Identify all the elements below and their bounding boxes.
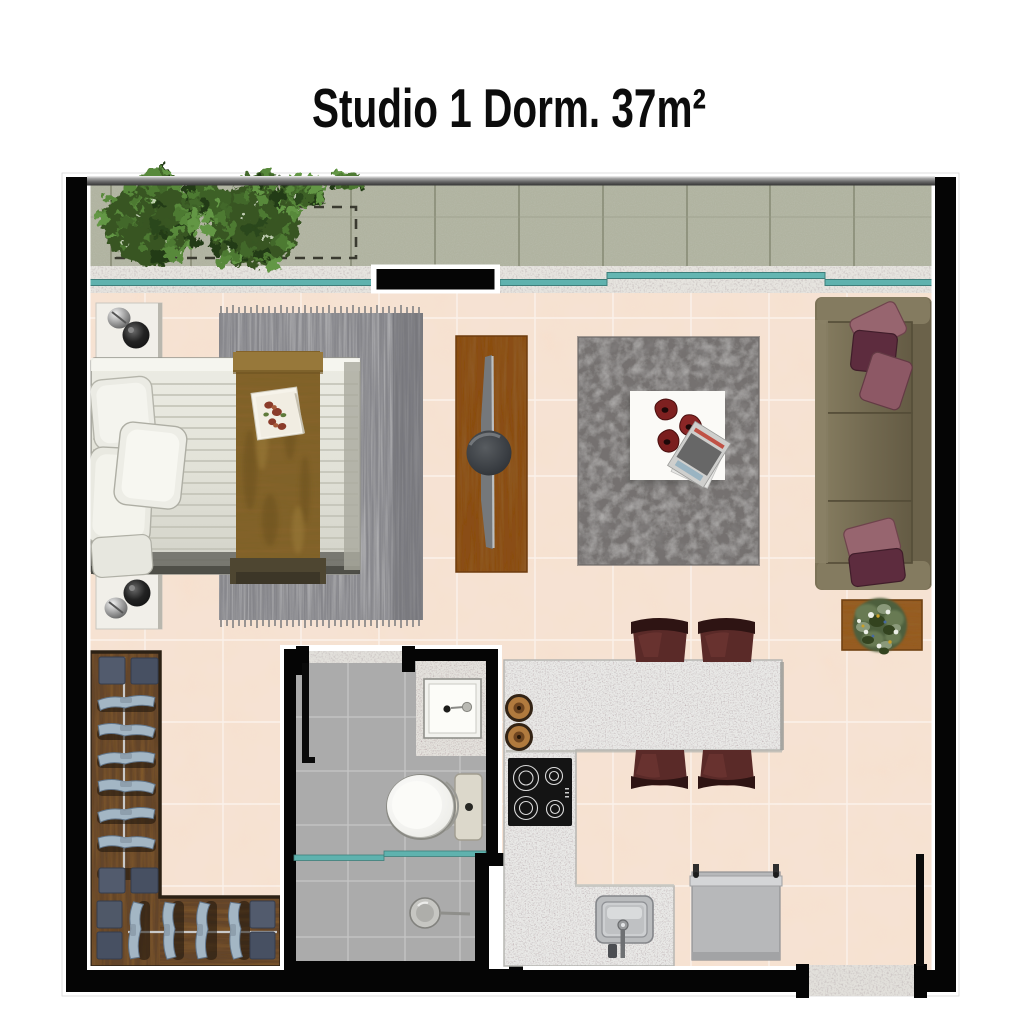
svg-text:Studio 1 Dorm. 37m²: Studio 1 Dorm. 37m² [312,77,706,139]
